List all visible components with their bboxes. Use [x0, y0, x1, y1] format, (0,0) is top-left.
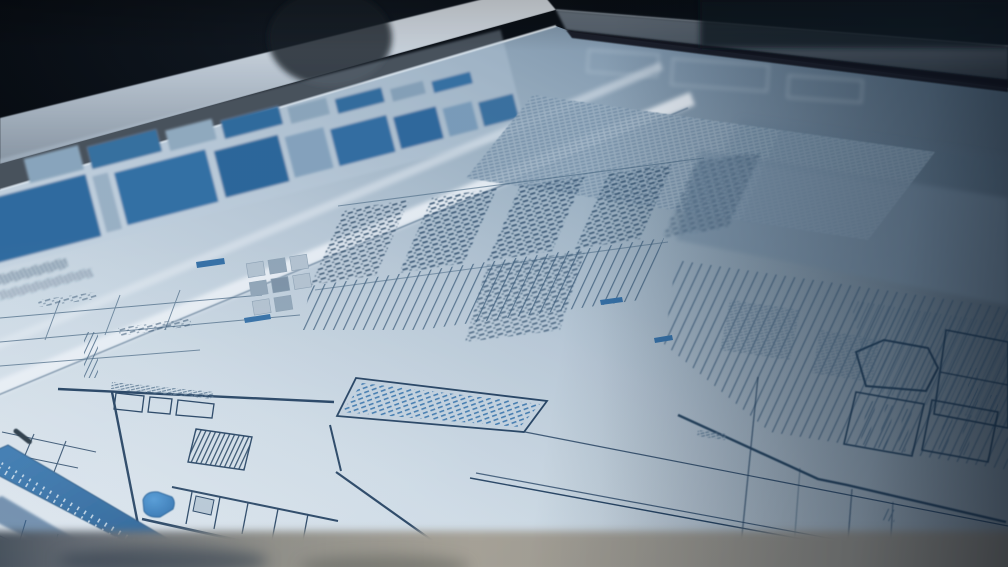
plan-cell	[193, 496, 214, 515]
blueprint-illustration	[0, 0, 1008, 567]
photo-blueprint-scene	[0, 0, 1008, 567]
dark-haze-top-right	[700, 0, 1008, 48]
plan-note-strip	[882, 508, 896, 522]
stair-hatch	[188, 429, 252, 470]
vertical-label-column	[968, 368, 978, 408]
vertical-label-column	[84, 332, 98, 378]
